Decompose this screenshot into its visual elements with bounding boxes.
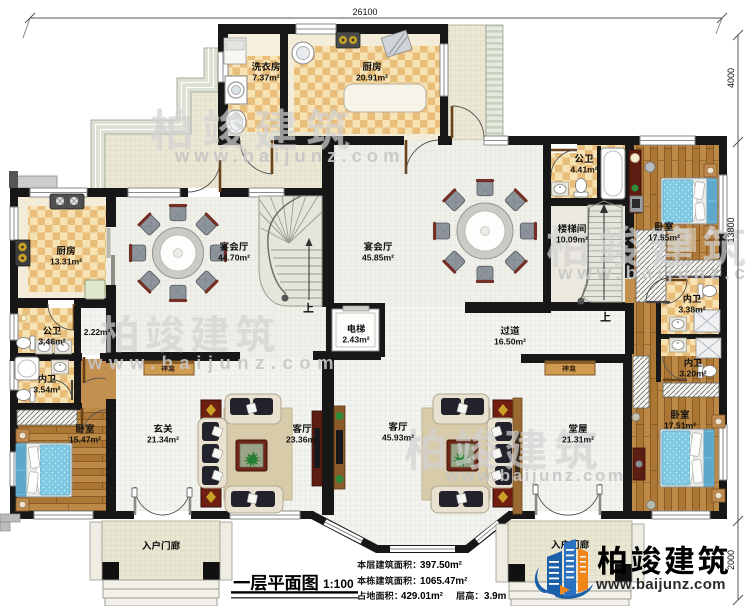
svg-text:26100: 26100	[352, 7, 377, 17]
svg-text:3.38m²: 3.38m²	[678, 305, 705, 315]
svg-text:www.baijunz.com: www.baijunz.com	[595, 576, 726, 593]
svg-text:www.baijunz.com: www.baijunz.com	[87, 352, 340, 373]
svg-text:21.31m²: 21.31m²	[562, 435, 594, 445]
svg-text:20.91m²: 20.91m²	[356, 73, 388, 83]
svg-text:44.70m²: 44.70m²	[218, 253, 250, 263]
svg-text:45.85m²: 45.85m²	[362, 253, 394, 263]
svg-text:2.43m²: 2.43m²	[342, 335, 369, 345]
svg-text:3.54m²: 3.54m²	[33, 385, 60, 395]
svg-text:21.34m²: 21.34m²	[147, 435, 179, 445]
svg-text:429.01m²: 429.01m²	[401, 591, 444, 602]
svg-text:397.50m²: 397.50m²	[420, 560, 463, 571]
svg-text:15.47m²: 15.47m²	[69, 435, 101, 445]
svg-text:45.93m²: 45.93m²	[382, 433, 414, 443]
svg-text:10.09m²: 10.09m²	[556, 235, 588, 245]
svg-text:www.baijunz.com: www.baijunz.com	[174, 145, 405, 166]
svg-text:www.baijunz.com: www.baijunz.com	[445, 466, 626, 485]
svg-text:3.20m²: 3.20m²	[679, 369, 706, 379]
svg-text:1065.47m²: 1065.47m²	[420, 576, 468, 587]
svg-text:13.31m²: 13.31m²	[50, 257, 82, 267]
svg-text:3.9m: 3.9m	[484, 591, 507, 602]
svg-text:13800: 13800	[726, 217, 736, 242]
svg-text:2.22m²: 2.22m²	[84, 327, 111, 337]
svg-text:4000: 4000	[726, 68, 736, 88]
svg-text:1:100: 1:100	[323, 577, 354, 591]
svg-text:www.baijunz.com: www.baijunz.com	[557, 262, 750, 283]
svg-text:23.36m²: 23.36m²	[286, 435, 318, 445]
svg-text:4.41m²: 4.41m²	[570, 165, 597, 175]
svg-text:3.46m²: 3.46m²	[38, 337, 65, 347]
svg-text:17.51m²: 17.51m²	[664, 421, 696, 431]
svg-text:17.55m²: 17.55m²	[648, 233, 680, 243]
svg-text:7.37m²: 7.37m²	[252, 73, 279, 83]
svg-text:2000: 2000	[726, 550, 736, 570]
svg-text:16.50m²: 16.50m²	[494, 337, 526, 347]
